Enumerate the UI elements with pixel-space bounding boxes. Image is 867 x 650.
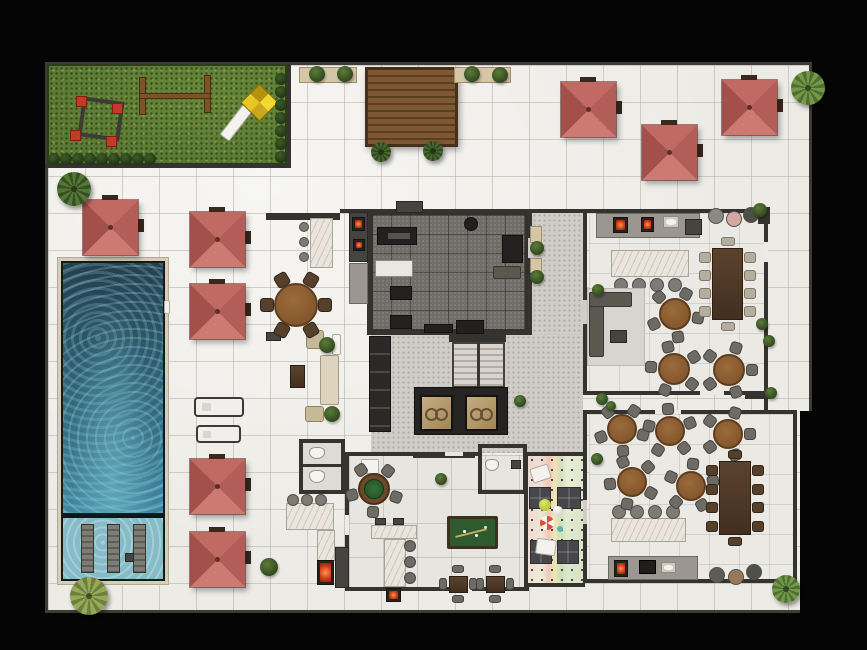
dining-table-chair [683,415,699,431]
pool-bar-counter [317,530,335,561]
wall-kidsroom-south [524,583,585,587]
shrub [464,66,480,82]
planter-pot [728,569,744,585]
parasol [190,212,245,267]
shrub [514,395,526,407]
shrub [324,406,340,422]
dining-table-8-chair [744,288,756,299]
sun-lounger [194,397,244,417]
poker-table-chair [367,506,379,518]
poker-table-felt [364,479,384,499]
door-gameroom-north [445,452,463,456]
palm-tree [371,142,391,162]
dining-table-8-chair [728,450,742,459]
gym-mat [493,266,521,279]
dining-table-chair [645,361,658,374]
bar-chair [404,556,416,568]
oven [641,217,654,232]
kitchen-cabinet [685,219,702,235]
toilet [485,459,499,471]
weight-bench [375,260,413,277]
oven [386,588,401,602]
dining-table-8-chair [752,484,764,495]
furniture-layer [0,0,867,650]
shrub [753,203,767,217]
parasol [722,80,777,135]
hedge-bush [72,153,84,165]
billiard-table [447,516,498,549]
climber-cube [76,96,87,107]
bar-chair [404,572,416,584]
hedge-bush [108,153,120,165]
shrub [591,453,603,465]
play-ball [553,506,563,516]
dining-table-8-chair [699,288,711,299]
dumbbell-rack [456,320,484,334]
wall-core-north [340,209,585,213]
game-table-chair [506,578,514,590]
hedge-bush [275,138,287,150]
bar-stool [299,252,309,262]
wall-lounge-east [764,209,768,395]
shrub [435,473,447,485]
exercise-bike [390,286,412,300]
dining-table-8-chair [728,537,742,546]
pool-bar-counter [286,503,334,530]
hedge-bush [132,153,144,165]
toilet [309,447,325,459]
door-lounge-south [700,391,724,395]
game-bar-counter [384,539,406,587]
planter-pot [708,208,724,224]
dining-table-chair [744,428,756,440]
patio-dining-table-chair [318,298,332,312]
dining-table-chair [641,418,656,433]
dining-table-8-chair [706,465,718,476]
play-mat [557,487,581,509]
play-table [529,463,552,483]
parasol [190,459,245,514]
door-rooms-west-lower [583,500,587,524]
dining-table [713,419,743,449]
palm-tree [423,141,443,161]
hedge-bush [275,125,287,137]
oven [614,560,628,577]
door-gameroom-west [345,515,349,535]
dining-table-8-chair [752,521,764,532]
dining-table-8 [719,461,751,535]
beverage-cooler [317,560,334,585]
bar-counter [611,250,689,277]
dining-table-chair [687,458,700,471]
hedge-bush [275,99,287,111]
outdoor-sofa [320,355,339,405]
climber-cube [106,136,117,147]
kitchenette-counter [349,263,368,304]
wet-deck-lounger [81,524,94,573]
bar-stool [301,494,313,506]
shrub [492,67,508,83]
hedge-bush [275,112,287,124]
climber-cube [112,103,123,114]
oven [353,239,365,251]
hedge-bush [48,153,60,165]
parasol [642,125,697,180]
bar-stool [287,494,299,506]
wall-hall-stub [413,452,475,458]
dining-table [676,471,706,501]
poker-table-chair [388,489,403,504]
parasol [190,284,245,339]
shrub [756,318,768,330]
wall-kidsroom-north [524,452,585,456]
coffee-table [610,330,627,343]
wall-grass-south [45,164,291,168]
game-table-chair [489,565,501,573]
game-table-chair [476,578,484,590]
dining-table-8-chair [744,270,756,281]
shrub [530,270,544,284]
beach-ball [540,516,554,530]
kitchen-sink [661,562,676,573]
bar-stool [299,222,309,232]
planter-pot [709,567,725,583]
pool-ladder [164,300,170,314]
palm-tree [791,71,825,105]
dining-table-8-chair [699,306,711,317]
wall-poolbath-mid [299,464,341,467]
sun-lounger [196,425,241,443]
palm-tree [772,575,800,603]
shrub [530,241,544,255]
patio-dining-table [274,283,318,327]
dining-table-8-chair [721,322,735,331]
dining-table-chair [746,364,758,376]
parasol [561,82,616,137]
patio-dining-table-chair [260,298,274,312]
wet-deck-lounger [133,524,146,573]
restroom-sink [511,460,521,469]
parasol [190,532,245,587]
oven [352,217,365,231]
dining-table-8-chair [744,306,756,317]
game-table [449,576,468,593]
game-table-chair [439,578,447,590]
wall-rooms-west-lower [583,410,587,583]
hedge-bush [84,153,96,165]
oven [613,217,628,233]
wet-deck-lounger [107,524,120,573]
dining-table-8-chair [752,465,764,476]
play-ball [539,499,551,511]
parasol [83,200,138,255]
game-table-chair [452,565,464,573]
play-mat [557,540,579,564]
shrub [763,335,775,347]
dining-table-8-chair [699,270,711,281]
bar-stool [315,494,327,506]
planter-pot [726,211,742,227]
treadmill [377,227,417,245]
dining-table-chair [604,478,617,491]
shrub [260,558,278,576]
dining-table-8-chair [706,521,718,532]
dining-table [659,298,691,330]
dining-table-8-chair [744,252,756,263]
coffee-table [290,365,305,388]
dining-table-8-chair [706,484,718,495]
toilet [309,470,325,483]
swing-beam [139,93,211,99]
wall-poolbath-east [341,439,345,494]
hedge-bush [144,153,156,165]
play-table [535,538,557,557]
game-bar-counter [371,525,417,539]
game-table-chair [452,595,464,603]
wall-restroom-north [478,444,527,448]
hedge-bush [120,153,132,165]
bar-chair [393,518,404,525]
outdoor-grill [396,201,423,213]
dining-table-8-chair [699,252,711,263]
fridge [335,547,349,588]
wall-restroom-east [523,444,527,494]
dining-table-chair [729,384,744,399]
game-table [486,576,505,593]
dining-table-chair [671,330,685,344]
planter-pot [746,564,762,580]
west-bar-counter [310,218,333,268]
exercise-bike [390,315,412,329]
shrub [309,66,325,82]
shrub [765,387,777,399]
bar-chair [404,540,416,552]
dining-table [655,416,685,446]
weight-machine [502,235,523,263]
door-lounge-east [764,242,768,262]
hedge-bush [275,73,287,85]
barbell-rack [424,324,453,333]
dining-table [713,354,745,386]
hedge-bush [275,151,287,163]
wall-hallroom-east [793,410,797,583]
dining-table [658,353,690,385]
palm-tree [70,577,108,615]
wicker-chair [305,406,324,422]
shrub [319,337,335,353]
hedge-bush [275,86,287,98]
play-ball [557,526,563,532]
dining-table-8-chair [752,502,764,513]
dining-table-8 [712,248,743,320]
wall-grass-east [287,64,291,168]
medicine-ball [464,217,478,231]
wall-poolbath-north [299,439,345,443]
shrub [337,66,353,82]
dining-table-8-chair [721,237,735,246]
bar-stool [648,505,662,519]
bar-counter [611,518,686,542]
dining-table-8-chair [706,502,718,513]
kitchen-sink [663,216,679,228]
wall-restroom-south [478,490,527,494]
hedge-bush [60,153,72,165]
cooktop [639,560,656,574]
shrub [592,284,604,296]
game-table-chair [489,595,501,603]
wet-deck-table [125,553,134,562]
wall-restroom-west [478,444,482,494]
palm-tree [57,172,91,206]
floor-plan-render [0,0,867,650]
bar-chair [375,518,386,525]
dining-table-chair [662,403,675,416]
dining-table [607,414,637,444]
shrub [606,401,616,411]
dining-table [617,467,647,497]
climber-cube [70,130,81,141]
bar-stool [299,237,309,247]
hedge-bush [96,153,108,165]
